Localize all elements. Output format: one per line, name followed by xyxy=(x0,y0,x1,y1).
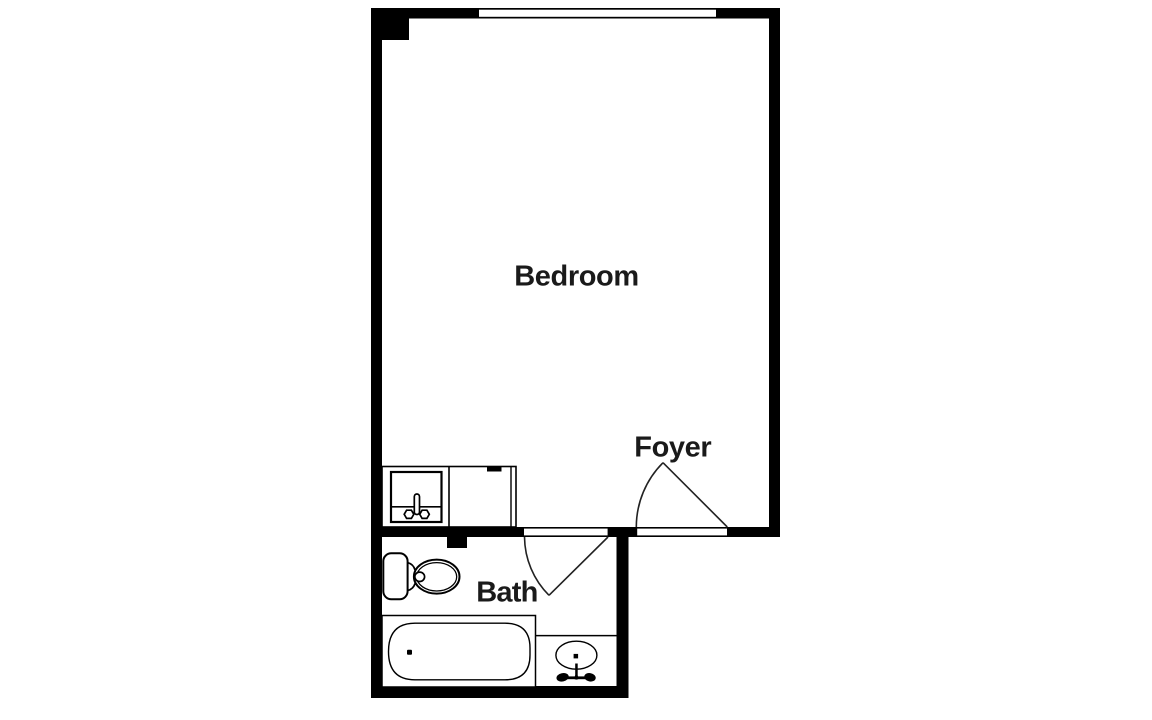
svg-text:Bath: Bath xyxy=(476,577,537,609)
svg-text:Foyer: Foyer xyxy=(634,432,711,464)
svg-text:Bedroom: Bedroom xyxy=(514,261,639,293)
